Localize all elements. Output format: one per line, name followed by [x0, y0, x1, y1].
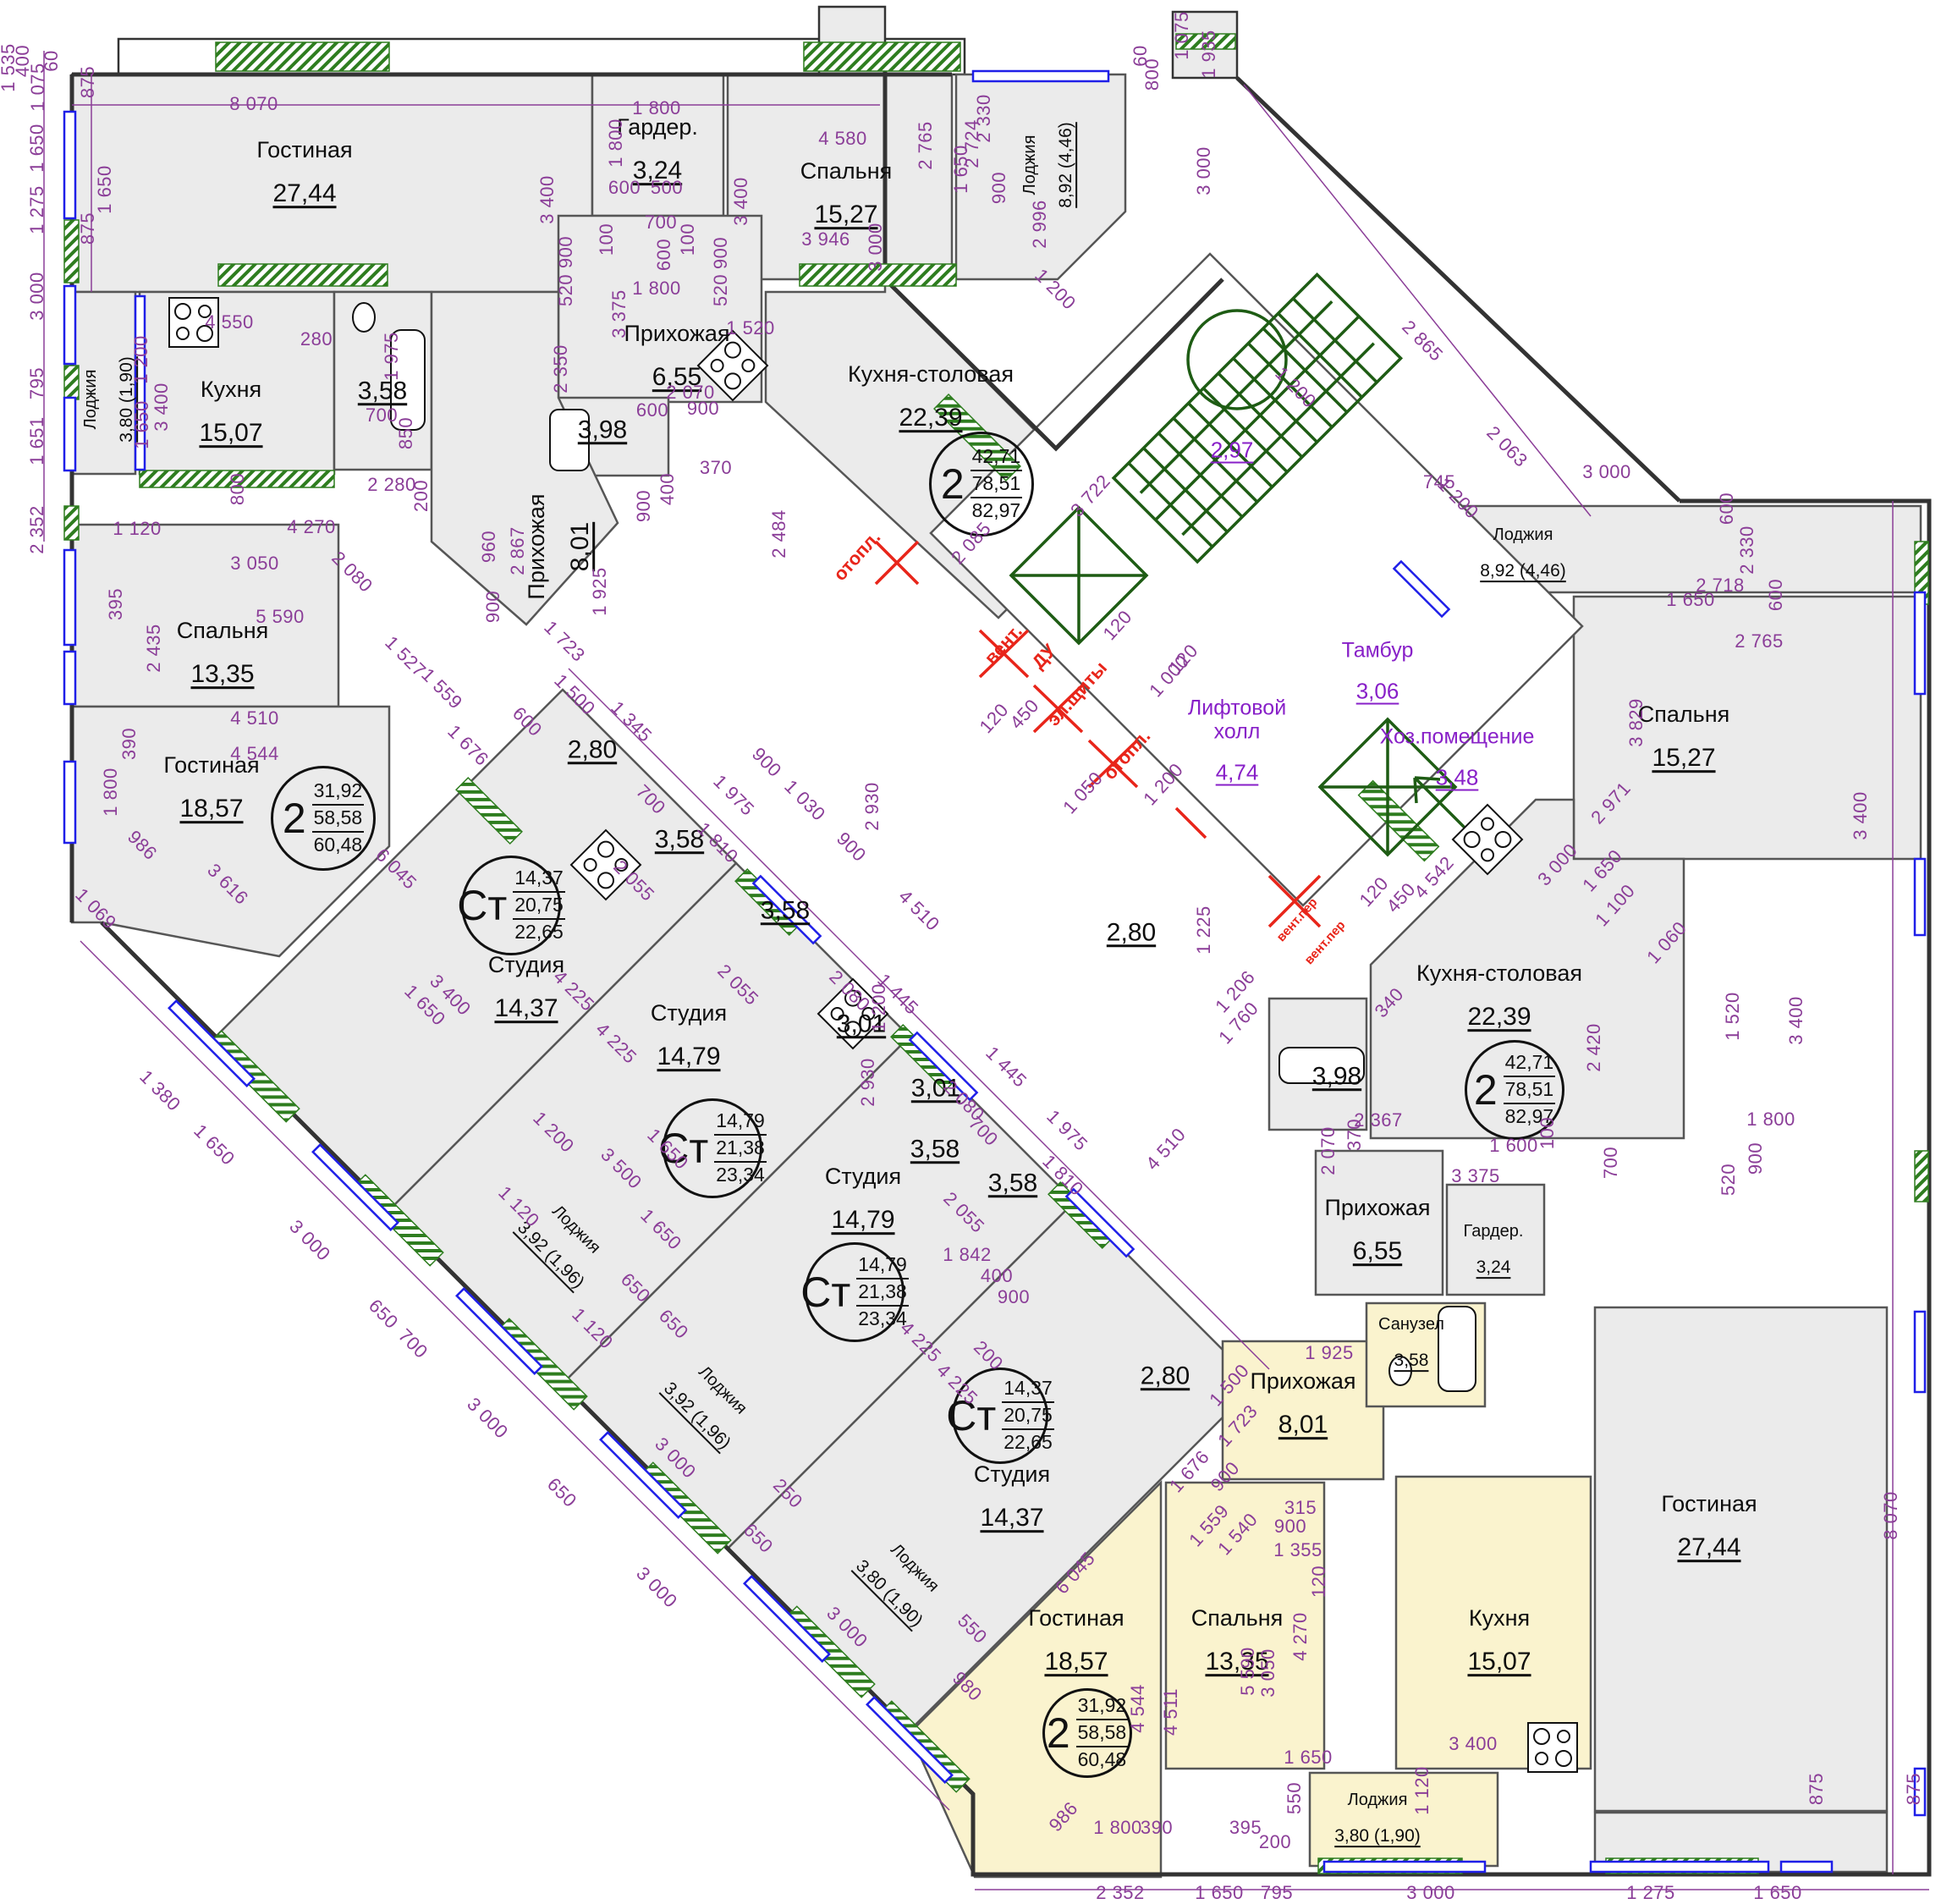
rooms-grey: [72, 74, 1921, 1872]
walls-layer: [0, 0, 1941, 1902]
floor-plan: Гостиная 27,44 Гардер. 3,24 Спальня 15,2…: [0, 0, 1941, 1902]
